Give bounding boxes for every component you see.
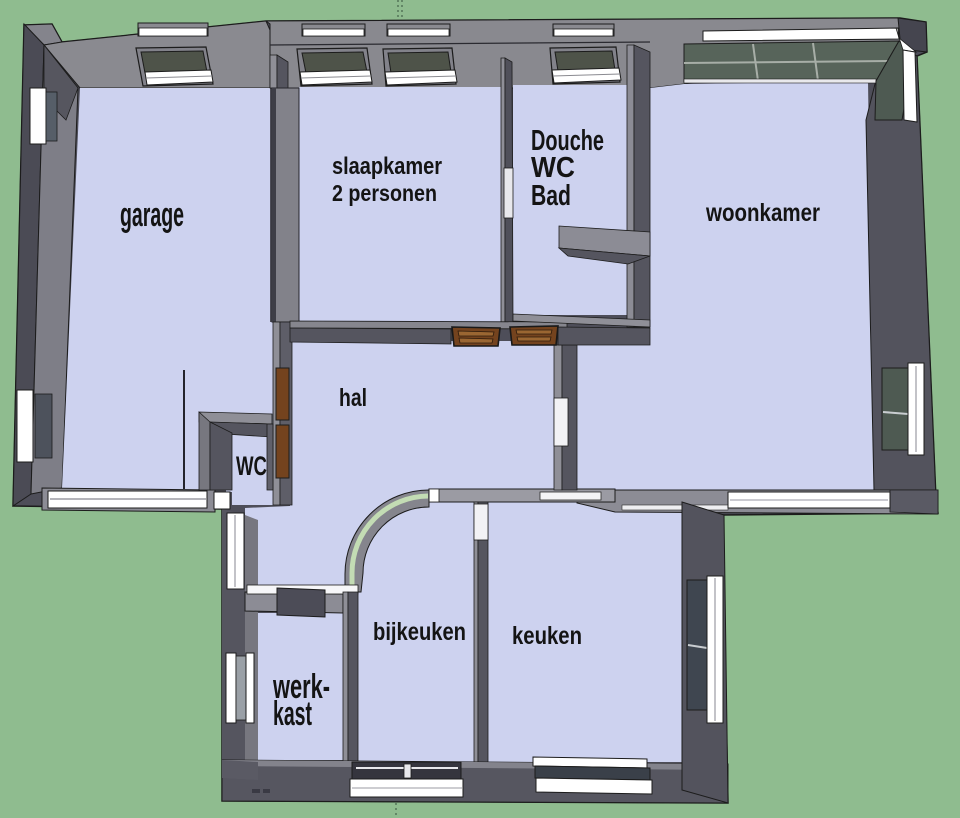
svg-text:slaapkamer: slaapkamer bbox=[332, 153, 442, 180]
svg-text:garage: garage bbox=[120, 196, 184, 234]
svg-text:Bad: Bad bbox=[531, 180, 571, 212]
svg-text:WC: WC bbox=[236, 451, 267, 481]
svg-text:kast: kast bbox=[273, 695, 312, 733]
svg-text:woonkamer: woonkamer bbox=[705, 199, 820, 227]
svg-text:hal: hal bbox=[339, 384, 367, 412]
svg-text:2 personen: 2 personen bbox=[332, 180, 437, 206]
svg-text:keuken: keuken bbox=[512, 622, 582, 650]
svg-text:bijkeuken: bijkeuken bbox=[373, 618, 466, 646]
